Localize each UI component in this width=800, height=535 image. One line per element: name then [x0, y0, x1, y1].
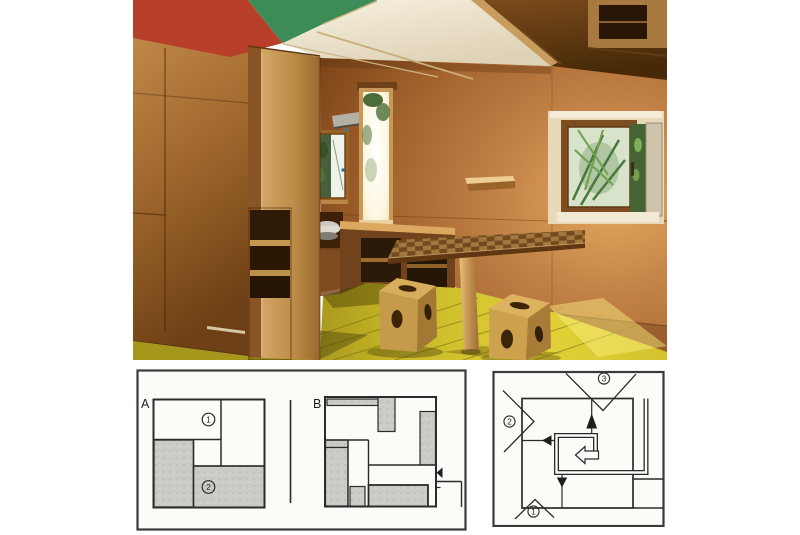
photo-cabanon-interior: [133, 0, 667, 360]
plan-a-shaded-bottom: [194, 466, 265, 508]
window-sill: [557, 212, 659, 222]
window-shutter: [646, 123, 662, 216]
circulation-marker-3: 3: [602, 374, 607, 383]
window-handle: [631, 162, 634, 176]
plan-b-shaded: [350, 487, 365, 507]
tall-window: [357, 82, 397, 228]
plans-panel: A 1 2 B: [136, 369, 468, 531]
crate-stool-left: [379, 278, 437, 352]
window-handle: [341, 168, 344, 171]
plan-b-shaded: [327, 399, 378, 406]
circulation-marker-1: 1: [531, 507, 536, 516]
plan-a-marker-2: 2: [206, 483, 211, 492]
square-window: [548, 111, 664, 224]
plan-b-shaded: [369, 485, 429, 507]
panel-border: [494, 372, 664, 526]
plan-b-shaded: [326, 448, 349, 507]
circulation-panel: 3 2 1: [492, 370, 665, 527]
circulation-marker-2: 2: [507, 417, 512, 426]
plan-b-shaded: [326, 440, 349, 448]
plan-a-marker-1: 1: [206, 415, 211, 424]
left-wall: [133, 30, 248, 356]
crate-stool-right: [489, 294, 551, 360]
plan-b-shaded: [378, 397, 395, 432]
plan-b-label: B: [313, 397, 321, 411]
plan-a-label: A: [141, 397, 150, 411]
partition-column: [248, 46, 320, 360]
figure-cabanon: A 1 2 B: [0, 0, 800, 535]
plan-a-shaded-left: [154, 440, 194, 507]
plan-b-shaded: [420, 412, 436, 466]
